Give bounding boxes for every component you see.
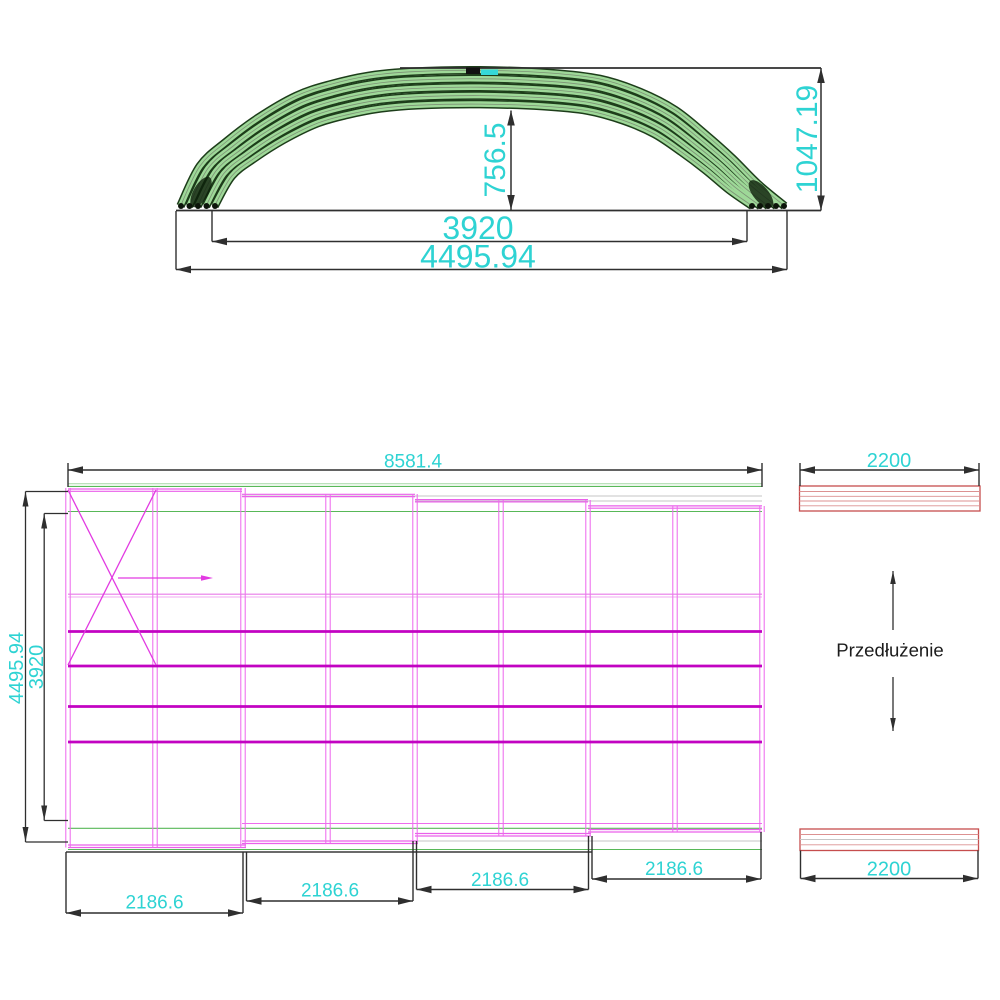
svg-text:8581.4: 8581.4 (384, 452, 443, 473)
svg-text:2186.6: 2186.6 (471, 870, 529, 891)
svg-text:1047.19: 1047.19 (791, 85, 824, 193)
svg-text:3920: 3920 (26, 645, 48, 690)
svg-text:4495.94: 4495.94 (6, 632, 28, 704)
svg-text:4495.94: 4495.94 (420, 239, 536, 275)
svg-text:2186.6: 2186.6 (125, 893, 183, 914)
svg-text:2200: 2200 (867, 859, 912, 881)
svg-text:2186.6: 2186.6 (645, 859, 703, 880)
svg-text:Przedłużenie: Przedłużenie (836, 640, 944, 661)
svg-text:756.5: 756.5 (479, 122, 512, 197)
svg-text:2200: 2200 (867, 450, 912, 472)
svg-text:2186.6: 2186.6 (301, 881, 359, 902)
